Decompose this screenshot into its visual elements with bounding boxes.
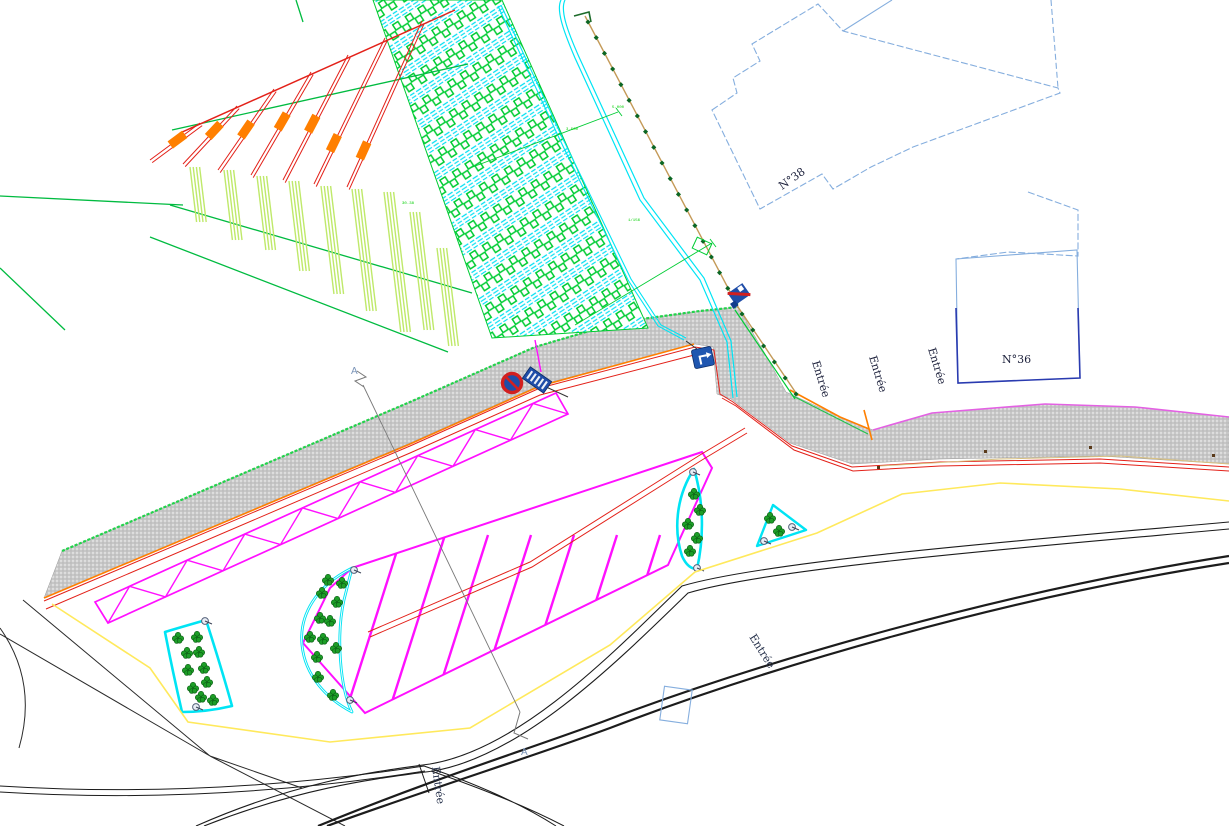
layer-pedestrian-path [44,307,1229,609]
building-38-outline [712,4,1060,209]
shrub-symbols [172,488,784,705]
entrance-label-1: Entrée [809,359,832,399]
yellow-boundary [52,483,1229,742]
plant-row-bundles [190,167,458,346]
building-36-upper-steps [956,192,1078,259]
site-plan-canvas: A A N°38 N°36 [0,0,1229,826]
sprinkler-symbols [193,469,799,711]
section-line [363,385,520,712]
section-marker-bottom: A [521,747,528,758]
building-38-roof-line [843,0,892,31]
dim-annotation-1: 5.000 [612,106,625,110]
sidewalk-band [44,307,1229,598]
building-36-dark-edge [956,308,1080,383]
site-plan-svg: A A N°38 N°36 [0,0,1229,826]
entrance-label-3: Entrée [925,346,948,386]
road-lower-edge-1 [318,556,1229,826]
entrance-label-4: Entrée [746,632,777,671]
building-label-36: N°36 [1002,353,1031,366]
parcel-line-topright [1051,0,1058,88]
checker-band [373,0,648,338]
entrance-label-5: Entrée [429,766,447,805]
red-crop-rows [150,21,424,190]
black-wedge-boundary [0,600,345,826]
red-utility-line [368,428,747,637]
section-marker-top: A [351,366,358,377]
direction-arrow-sign-icon [691,346,715,369]
road-lower-edge-2 [327,563,1229,826]
dim-annotation-2: 3.500 [566,128,579,132]
no-stopping-sign-icon [503,374,522,393]
dim-annotation-4: 30.38 [402,202,415,206]
main-parking-lot [303,452,712,713]
building-label-38: N°38 [776,165,807,192]
dim-annotation-3: 1/156 [628,218,641,223]
entrance-label-2: Entrée [866,354,889,394]
